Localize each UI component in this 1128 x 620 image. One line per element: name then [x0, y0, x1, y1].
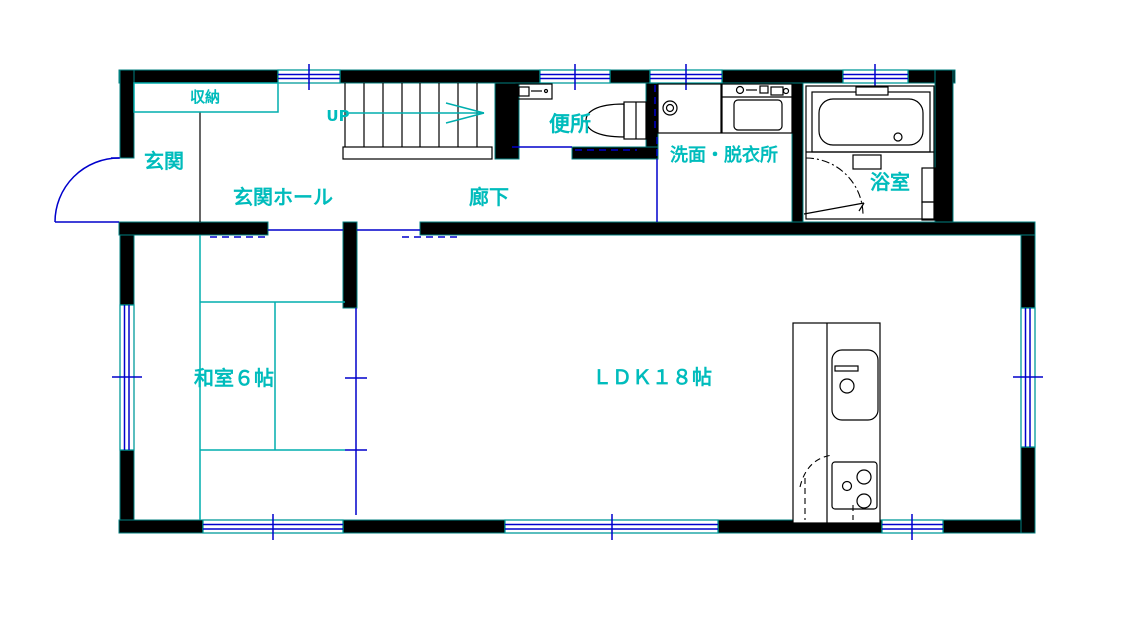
vanity-sink — [722, 84, 792, 133]
toilet-bowl — [586, 102, 646, 139]
sliding-door-washitsu-ldk — [345, 308, 367, 515]
label-stairs-up: UP — [326, 107, 349, 125]
label-storage: 収納 — [190, 88, 220, 106]
bathroom-unit — [804, 86, 935, 220]
staircase — [343, 83, 492, 159]
toilet-hand-sink — [516, 84, 552, 99]
bathroom-door — [804, 158, 864, 215]
label-bathroom: 浴室 — [870, 170, 910, 194]
up-arrow — [349, 103, 484, 123]
washing-machine — [658, 84, 721, 133]
window-top-1 — [278, 64, 340, 90]
label-ldk: ＬＤＫ１８帖 — [592, 365, 712, 389]
floor-plan-drawing: 収納 玄関 玄関ホール UP 便所 廊下 洗面・脱衣所 浴室 和室６帖 ＬＤＫ１… — [0, 0, 1128, 620]
kitchen-counter — [793, 323, 880, 523]
entrance-door — [55, 158, 120, 222]
label-toilet: 便所 — [549, 112, 591, 136]
label-japanese-room: 和室６帖 — [194, 366, 274, 390]
window-right-ldk — [1013, 308, 1043, 447]
window-top-3 — [650, 64, 722, 90]
window-top-2 — [540, 64, 610, 90]
label-washroom: 洗面・脱衣所 — [670, 144, 778, 166]
window-bottom-washitsu — [203, 514, 343, 540]
window-bottom-ldk-1 — [505, 514, 718, 540]
floor-plan-canvas: 収納 玄関 玄関ホール UP 便所 廊下 洗面・脱衣所 浴室 和室６帖 ＬＤＫ１… — [0, 0, 1128, 620]
label-entrance: 玄関 — [144, 149, 184, 173]
window-bottom-ldk-2 — [882, 514, 943, 540]
label-entrance-hall: 玄関ホール — [233, 185, 333, 209]
window-left-washitsu — [112, 305, 142, 450]
label-corridor: 廊下 — [469, 185, 509, 209]
